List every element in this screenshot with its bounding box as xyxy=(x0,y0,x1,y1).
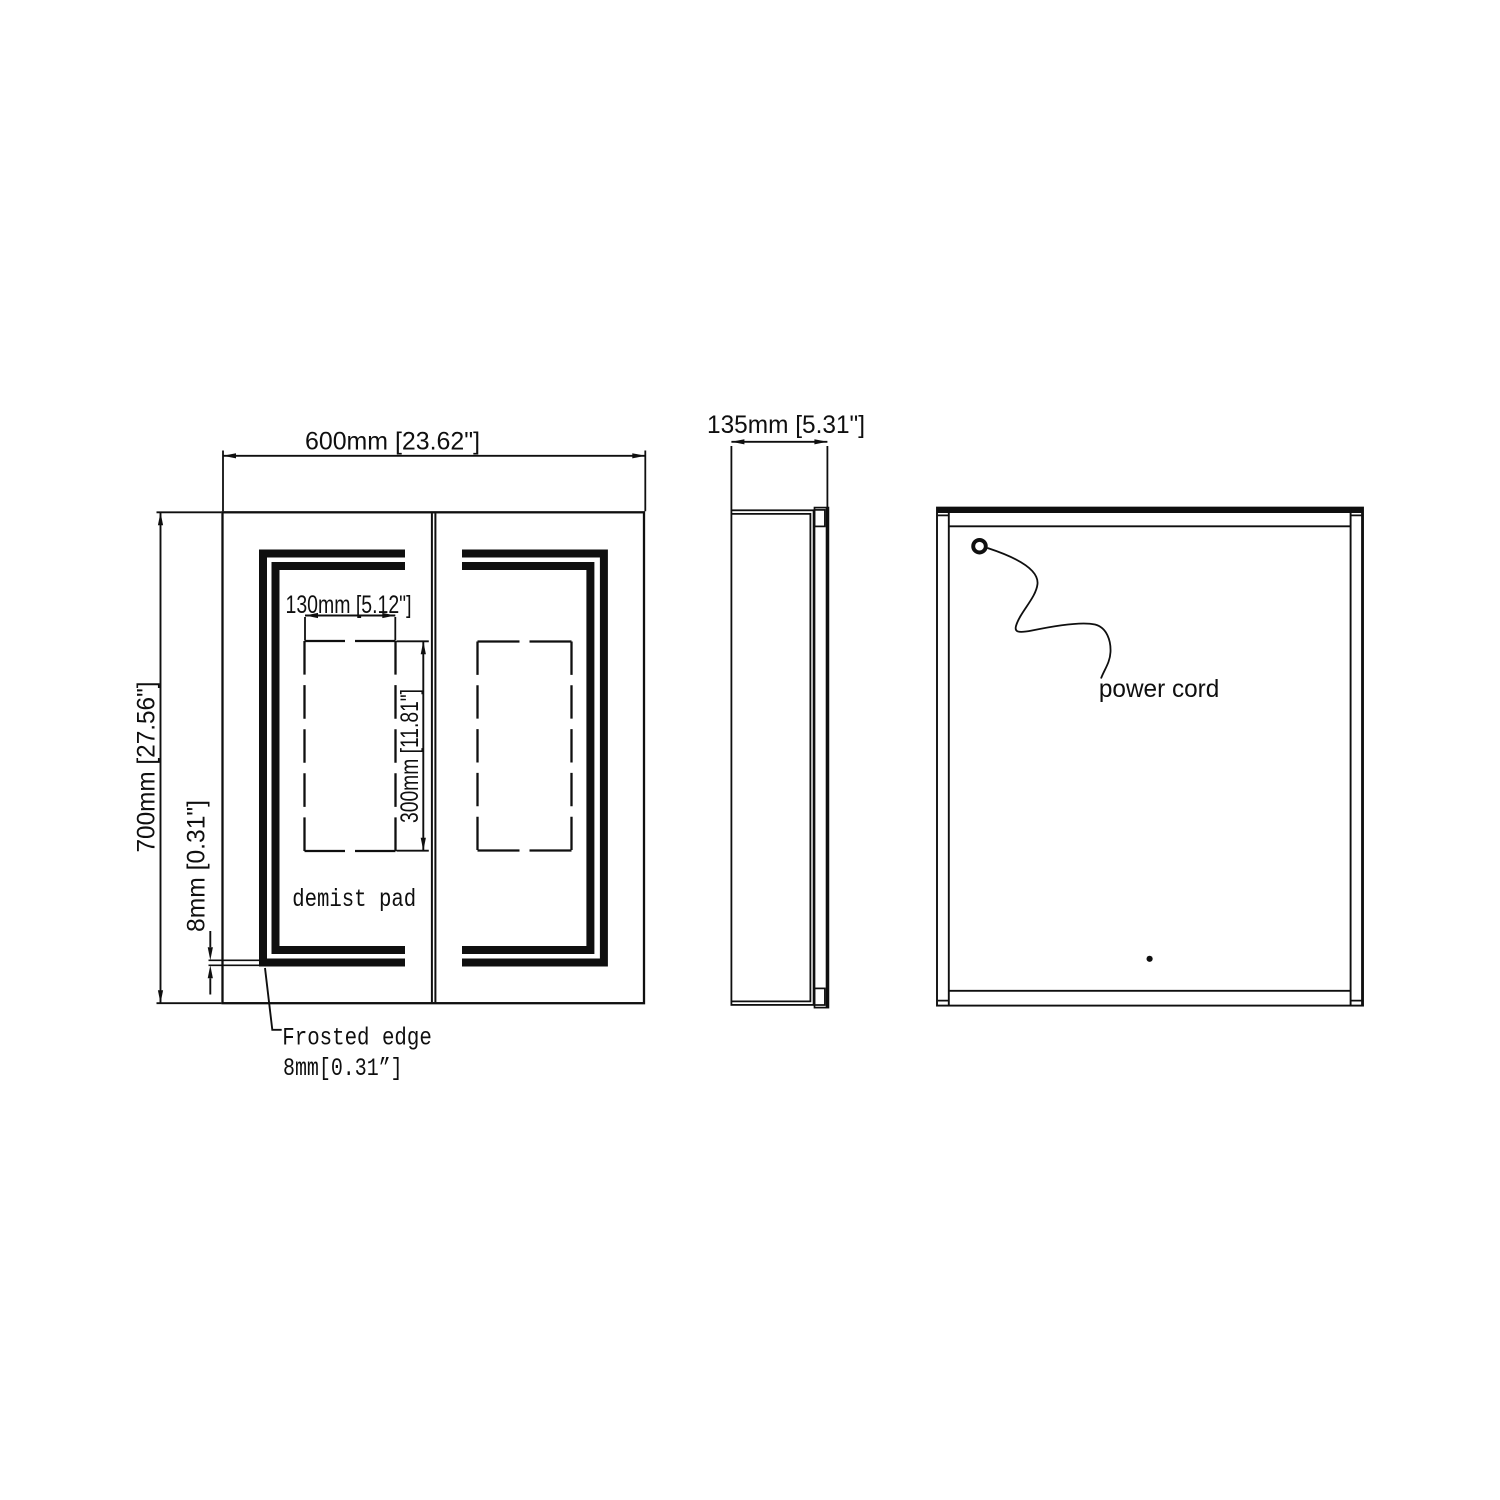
svg-text:8mm [0.31"]: 8mm [0.31"] xyxy=(183,800,211,932)
svg-text:demist pad: demist pad xyxy=(292,885,416,914)
svg-text:135mm [5.31"]: 135mm [5.31"] xyxy=(707,411,865,439)
svg-text:300mm [11.81"]: 300mm [11.81"] xyxy=(396,689,424,823)
svg-text:8mm[0.31”]: 8mm[0.31”] xyxy=(283,1054,403,1083)
svg-text:600mm [23.62"]: 600mm [23.62"] xyxy=(305,428,480,456)
svg-text:700mm [27.56"]: 700mm [27.56"] xyxy=(132,682,160,853)
svg-text:Frosted edge: Frosted edge xyxy=(282,1024,432,1053)
svg-text:130mm [5.12"]: 130mm [5.12"] xyxy=(286,591,412,619)
svg-text:power cord: power cord xyxy=(1099,675,1219,703)
